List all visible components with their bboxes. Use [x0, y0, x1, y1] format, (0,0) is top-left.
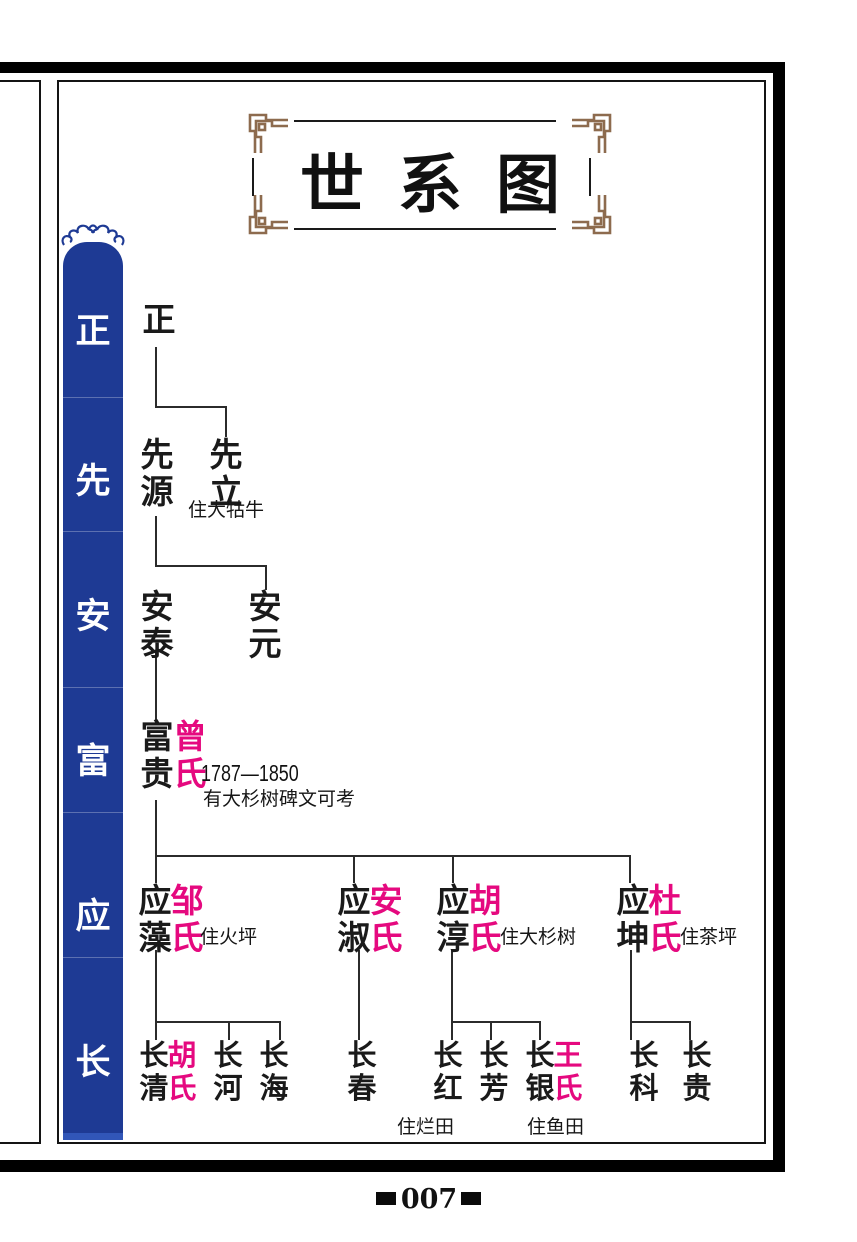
- life-dates: 1787—1850: [201, 760, 299, 787]
- spouse-name: 胡氏: [167, 1040, 197, 1106]
- tree-connector-line: [451, 1021, 541, 1023]
- residence-note: 住烂田: [397, 1112, 454, 1139]
- tree-connector-line: [155, 855, 631, 857]
- tree-connector-line: [225, 406, 227, 437]
- person-name: 安泰: [140, 590, 174, 665]
- page-number-marker: [376, 1192, 396, 1205]
- residence-note: 住火坪: [200, 922, 257, 949]
- tree-connector-line: [155, 347, 157, 407]
- spouse-name: 安氏: [369, 884, 403, 959]
- generation-label: 先: [63, 453, 123, 504]
- spouse-name: 杜氏: [648, 884, 682, 959]
- tree-connector-line: [629, 855, 631, 883]
- person-name: 富贵: [140, 720, 174, 795]
- sidebar-divider: [63, 531, 123, 532]
- sidebar-divider: [63, 687, 123, 688]
- adjacent-page-edge: [0, 80, 41, 1144]
- stele-note: 有大杉树碑文可考: [203, 784, 355, 811]
- tree-connector-line: [451, 950, 453, 1040]
- person-name: 长银: [525, 1040, 555, 1106]
- tree-connector-line: [452, 855, 454, 883]
- spouse-name: 邹氏: [170, 884, 204, 959]
- tree-connector-line: [353, 855, 355, 883]
- tree-connector-line: [630, 1021, 691, 1023]
- tree-connector-line: [358, 950, 360, 1040]
- person-name: 应藻: [138, 884, 172, 959]
- tree-connector-line: [228, 1021, 230, 1040]
- tree-connector-line: [630, 950, 632, 1040]
- person-name: 应淳: [436, 884, 470, 959]
- tree-connector-line: [155, 950, 157, 1040]
- title-box-top-line: [294, 120, 556, 122]
- person-name: 长清: [139, 1040, 169, 1106]
- person-name: 应坤: [616, 884, 650, 959]
- title-box-bottom-line: [294, 228, 556, 230]
- tree-connector-line: [490, 1021, 492, 1040]
- book-page: 世系图 正 先 安 富 应 长 正 先源 先立: [0, 0, 857, 1242]
- page-title: 世系图: [248, 134, 612, 226]
- tree-connector-line: [155, 406, 227, 408]
- person-name: 长河: [213, 1040, 243, 1106]
- tree-connector-line: [279, 1021, 281, 1040]
- tree-connector-line: [689, 1021, 691, 1040]
- person-name: 长春: [347, 1040, 377, 1106]
- residence-note: 住茶坪: [680, 922, 737, 949]
- generation-label: 应: [63, 888, 123, 939]
- sidebar-divider: [63, 957, 123, 958]
- residence-note: 住鱼田: [527, 1112, 584, 1139]
- sidebar-divider: [63, 397, 123, 398]
- person-name: 长科: [629, 1040, 659, 1106]
- person-name: 先源: [140, 438, 174, 513]
- page-number: 007: [399, 1184, 459, 1215]
- generation-sidebar: [63, 242, 123, 1140]
- generation-label: 正: [63, 303, 123, 354]
- person-name: 安元: [248, 590, 282, 665]
- tree-connector-line: [155, 1021, 281, 1023]
- person-name: 长贵: [682, 1040, 712, 1106]
- residence-note: 住大牯牛: [188, 495, 264, 522]
- person-name: 长红: [433, 1040, 463, 1106]
- generation-label: 安: [63, 588, 123, 639]
- spouse-name: 胡氏: [468, 884, 502, 959]
- frame-bottom-bar: [0, 1160, 785, 1172]
- person-name: 应淑: [337, 884, 371, 959]
- generation-label: 富: [63, 733, 123, 784]
- tree-connector-line: [155, 855, 157, 883]
- residence-note: 住大杉树: [500, 922, 576, 949]
- spouse-name: 王氏: [553, 1040, 583, 1106]
- person-name: 长海: [259, 1040, 289, 1106]
- sidebar-divider: [63, 812, 123, 813]
- page-number-marker: [461, 1192, 481, 1205]
- sidebar-bottom-band: [63, 1133, 123, 1140]
- tree-connector-line: [265, 565, 267, 590]
- frame-top-bar: [0, 62, 785, 73]
- frame-right-bar: [773, 62, 785, 1172]
- tree-connector-line: [155, 800, 157, 857]
- generation-label: 长: [63, 1034, 123, 1085]
- tree-connector-line: [539, 1021, 541, 1040]
- tree-connector-line: [155, 565, 267, 567]
- tree-connector-line: [155, 516, 157, 566]
- person-name: 长芳: [479, 1040, 509, 1106]
- person-name: 正: [142, 303, 176, 340]
